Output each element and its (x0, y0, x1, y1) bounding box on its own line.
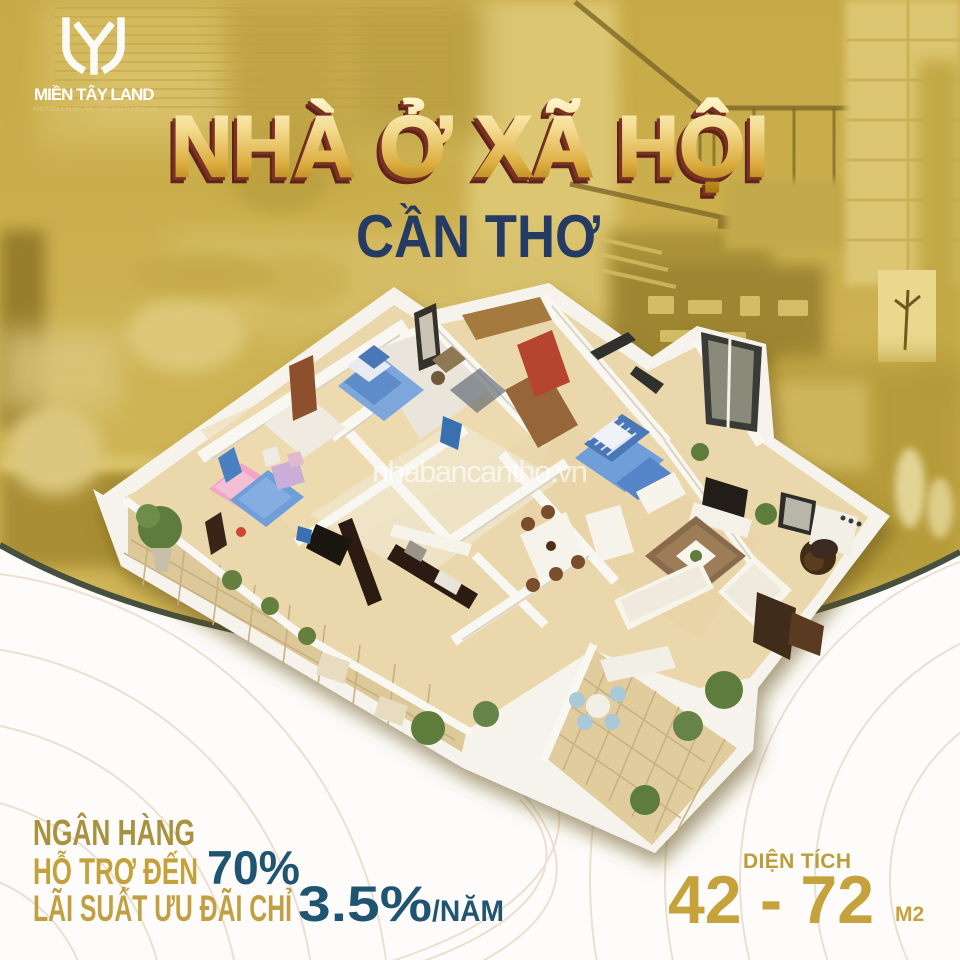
svg-text:LÃI SUẤT ƯU ĐÃI CHỈ: LÃI SUẤT ƯU ĐÃI CHỈ (33, 887, 292, 929)
svg-text:HỖ TRỢ ĐẾN: HỖ TRỢ ĐẾN (33, 850, 198, 892)
svg-text:MIỀN TÂY LAND: MIỀN TÂY LAND (34, 85, 156, 104)
svg-text:CẦN THƠ: CẦN THƠ (356, 203, 601, 270)
svg-text:42 - 72: 42 - 72 (668, 862, 874, 938)
svg-text:70%: 70% (207, 841, 300, 894)
svg-text:NHÀ Ở XÃ HỘI: NHÀ Ở XÃ HỘI (171, 99, 769, 195)
svg-text:M2: M2 (895, 903, 924, 926)
svg-text:nhabancantho.vn: nhabancantho.vn (372, 454, 588, 489)
svg-text:/NĂM: /NĂM (432, 894, 504, 928)
svg-text:3.5%: 3.5% (298, 876, 432, 932)
svg-text:NGÂN HÀNG: NGÂN HÀNG (33, 811, 195, 853)
